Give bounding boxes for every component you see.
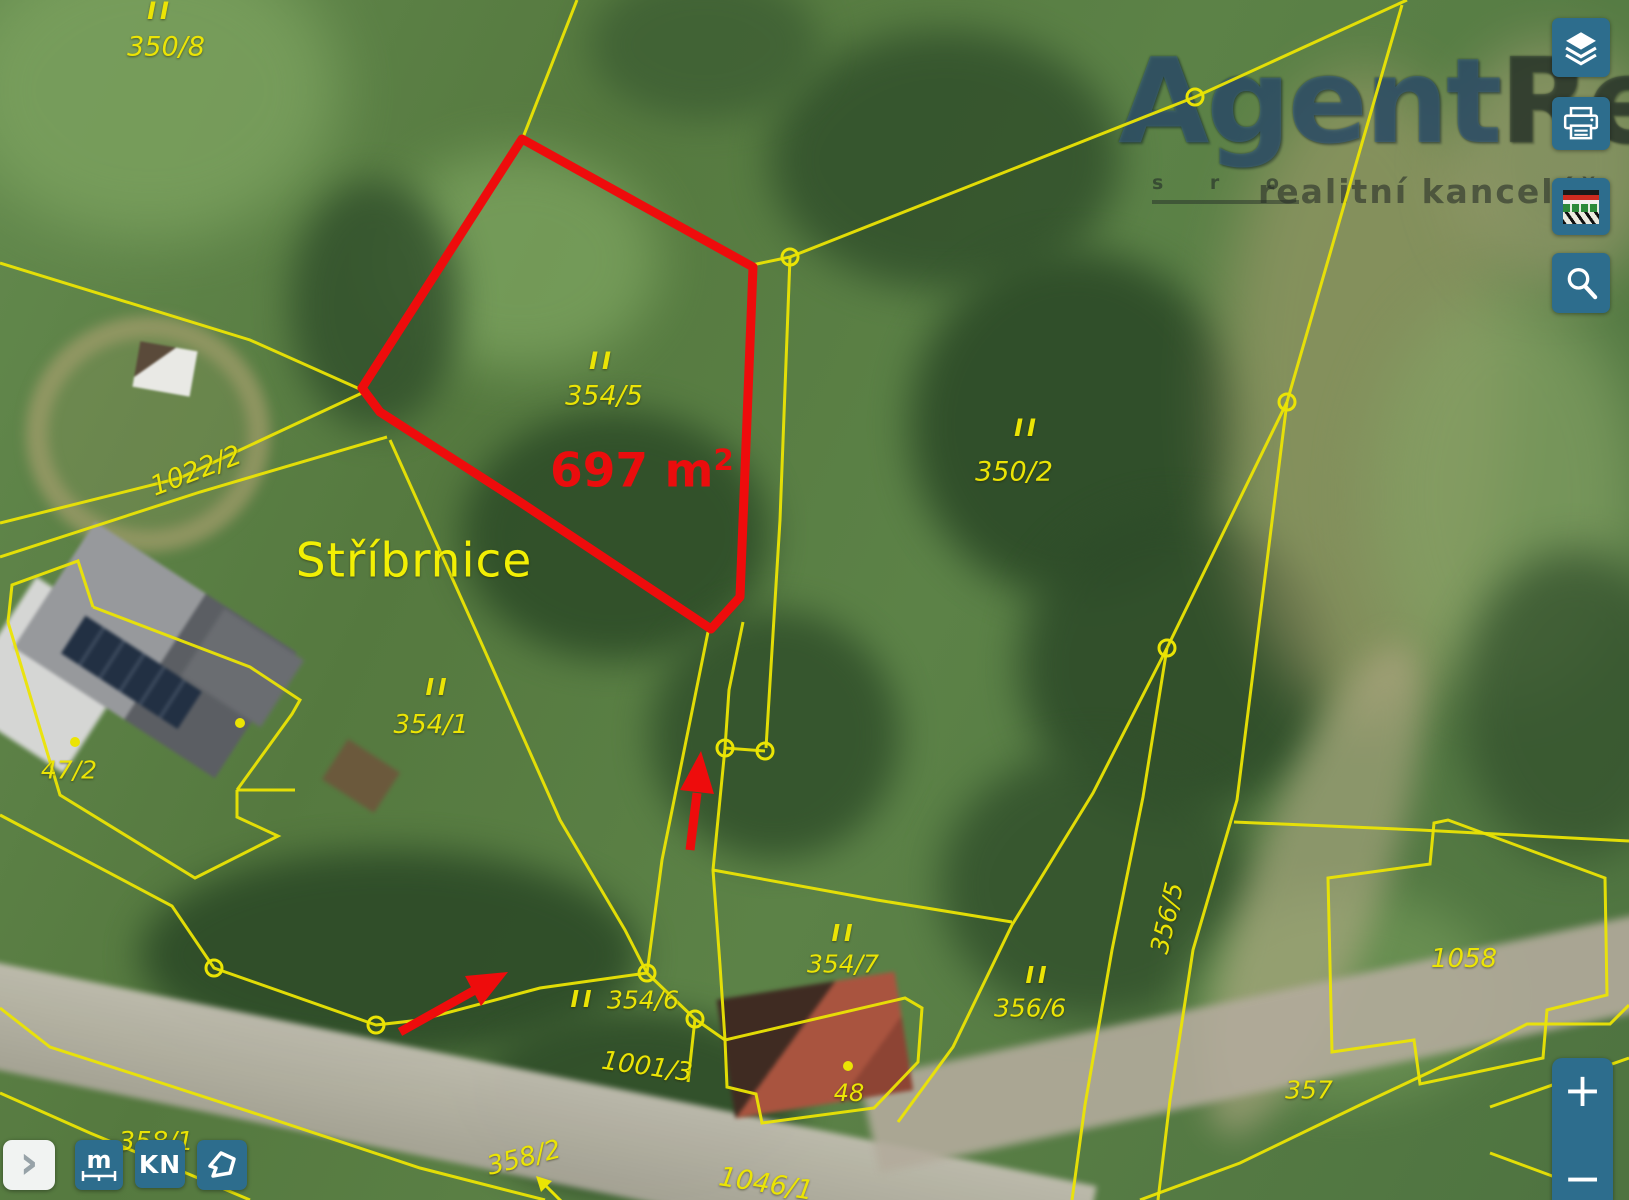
area-value: 697 m [550,444,713,499]
print-button[interactable] [1552,97,1610,150]
parcel-label: 48 [834,1079,865,1107]
kn-label: KN [139,1150,181,1179]
measure-button[interactable]: m [75,1140,123,1190]
print-icon [1561,105,1601,143]
layers-icon [1559,28,1603,68]
parcel-boundaries [0,0,1629,1200]
landuse-mark: II [147,0,173,25]
landuse-mark: II [425,675,450,701]
place-name-label: Stříbrnice [296,534,533,589]
ruler-icon [81,1170,117,1182]
polygon-icon [204,1149,240,1181]
parcel-label: 354/7 [807,950,879,979]
measure-glyph: m [86,1148,111,1172]
yellow-pointer-arrow [536,1176,566,1200]
legend-button[interactable] [1552,178,1610,235]
landuse-mark: II [570,987,595,1013]
parcel-label: 47/2 [41,756,97,785]
expand-panel-button[interactable]: › [3,1140,55,1190]
search-button[interactable] [1552,253,1610,313]
parcel-label: 1058 [1431,944,1497,974]
zoom-out-button[interactable]: − [1563,1160,1602,1197]
landuse-mark: II [589,347,615,375]
zoom-control: + − [1552,1058,1613,1200]
cadastre-kn-button[interactable]: KN [135,1140,185,1188]
legend-icon [1563,190,1599,224]
map-viewer[interactable]: AgentReal s r o realitní kancelář [0,0,1629,1200]
landuse-mark: II [1014,414,1040,442]
parcel-lines-overlay [0,0,1629,1200]
parcel-label: 357 [1285,1076,1333,1105]
parcel-label: 356/6 [994,994,1066,1023]
parcel-label: 350/8 [127,32,205,63]
parcel-area-label: 697 m2 [550,443,734,499]
measure-icon: m [81,1148,117,1182]
parcel-label: 354/1 [394,710,469,740]
parcel-label: 350/2 [975,457,1053,488]
landuse-mark: II [1025,963,1050,989]
parcel-label: 354/5 [565,381,643,412]
building-point-markers [70,718,853,1071]
area-sup: 2 [713,443,733,477]
zoom-in-button[interactable]: + [1563,1072,1602,1109]
search-icon [1561,263,1601,303]
parcel-label: 354/6 [607,986,679,1015]
layers-button[interactable] [1552,18,1610,77]
draw-polygon-button[interactable] [197,1140,247,1190]
landuse-mark: II [831,921,856,947]
